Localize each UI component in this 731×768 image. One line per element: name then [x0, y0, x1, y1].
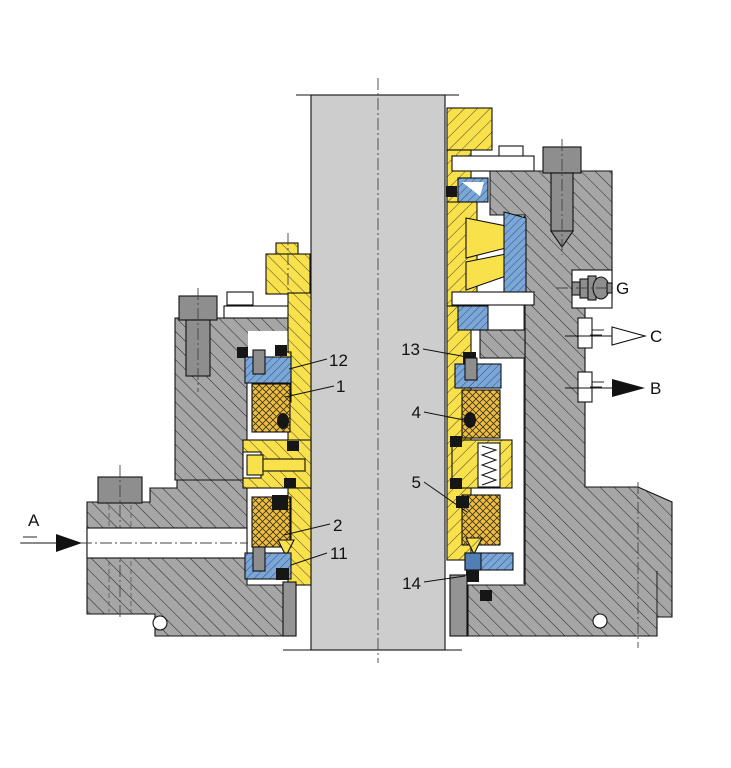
- set-screw: [253, 350, 265, 374]
- retainer-ring-12: [245, 357, 291, 383]
- o-ring: [277, 413, 289, 429]
- arrow-head-outline: [612, 327, 645, 345]
- drive-bolt-head: [247, 455, 263, 475]
- o-ring: [276, 568, 289, 580]
- hex-bolt-side: [227, 292, 253, 305]
- callout-4: 4: [412, 403, 421, 422]
- retainer-ring-right: [455, 364, 501, 388]
- o-ring: [275, 345, 287, 356]
- shaft-collar-block: [447, 108, 492, 150]
- o-ring: [446, 186, 457, 197]
- port-label-c: C: [650, 327, 662, 346]
- gland-block-bolt: [276, 243, 298, 255]
- callout-14: 14: [402, 574, 421, 593]
- drive-bolt-shank: [263, 459, 305, 471]
- right-bore-wall: [450, 575, 467, 636]
- hex-bolt-side: [499, 146, 523, 157]
- o-ring: [287, 441, 299, 451]
- spacer-ring: [452, 156, 534, 171]
- arrow-head-filled: [56, 534, 82, 552]
- o-ring-14: [466, 570, 479, 582]
- bearing-cage-bottom: [458, 306, 488, 330]
- port-c-boss: [578, 318, 592, 348]
- dowel-hole: [593, 614, 607, 628]
- port-b-boss: [578, 372, 592, 402]
- o-ring: [237, 347, 248, 358]
- port-label-b: B: [650, 379, 661, 398]
- callout-13: 13: [401, 340, 420, 359]
- flow-arrow-a: A: [21, 511, 82, 552]
- o-ring: [284, 478, 296, 488]
- o-ring: [272, 495, 288, 510]
- o-ring: [480, 590, 492, 601]
- set-screw: [253, 547, 265, 571]
- o-ring: [450, 478, 462, 489]
- arrow-head-filled: [612, 379, 645, 397]
- port-label-g: G: [616, 279, 629, 298]
- left-bore-wall: [283, 582, 296, 636]
- o-ring: [450, 436, 462, 447]
- callout-12: 12: [329, 351, 348, 370]
- drawing-canvas: 12 1 2 11 13 4 5 14 A C: [0, 0, 731, 768]
- callout-11: 11: [330, 544, 348, 563]
- port-label-a: A: [28, 511, 40, 530]
- callout-1: 1: [336, 377, 345, 396]
- spacer-ring: [452, 292, 534, 305]
- callout-5: 5: [412, 473, 421, 492]
- set-screw: [465, 358, 477, 380]
- bearing-outer-race: [504, 212, 526, 297]
- dowel-hole: [153, 616, 167, 630]
- cross-section-drawing: 12 1 2 11 13 4 5 14 A C: [0, 0, 731, 768]
- callout-2: 2: [333, 516, 342, 535]
